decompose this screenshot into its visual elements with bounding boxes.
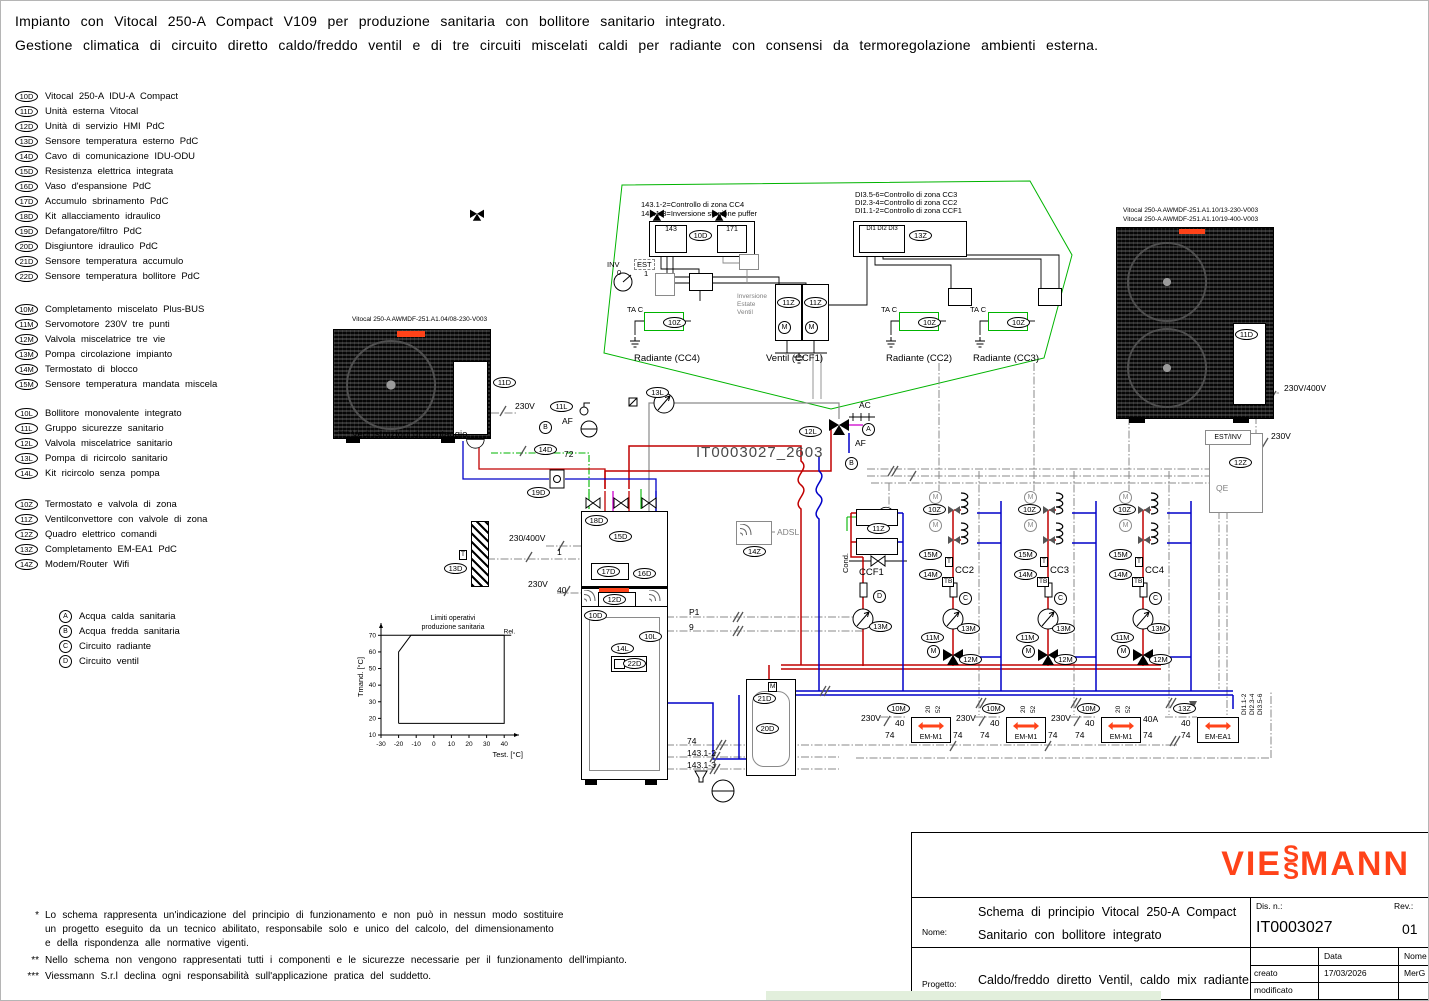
arrow-icon	[1205, 722, 1231, 730]
logo-double-s: S S	[1283, 846, 1299, 880]
legend-label: Sensore temperatura bollitore PdC	[45, 271, 200, 282]
badge-11d: 11D	[1235, 329, 1258, 340]
rev-label: Rev.:	[1394, 901, 1413, 911]
badge-12l: 12L	[799, 426, 822, 437]
badge-13z: 13Z	[1173, 703, 1196, 714]
legend-item: 12LValvola miscelatrice sanitario	[15, 436, 182, 451]
sensor-t-box: T	[459, 550, 467, 560]
electric-panel-qe	[1209, 433, 1263, 513]
legend-item: BAcqua fredda sanitaria	[59, 624, 180, 639]
right-odu-caption1: Vitocal 250-A AWMDF-251.A1.10/13-230-V00…	[1123, 207, 1258, 214]
legend-label: Acqua fredda sanitaria	[79, 626, 180, 637]
legend-letter-badge: C	[59, 640, 72, 653]
legend-badge: 10D	[15, 91, 38, 102]
badge-14l: 14L	[611, 643, 634, 654]
label-9: 9	[689, 622, 694, 632]
label-230v: 230V	[515, 401, 535, 411]
label-40a: 40A	[1143, 714, 1158, 724]
legend-badge: 14L	[15, 468, 38, 479]
svg-text:30: 30	[483, 741, 491, 748]
note-3: *** Viessmann S.r.l declina ogni respons…	[17, 970, 627, 984]
badge-12d: 12D	[603, 594, 626, 605]
badge-15m: 15M	[1109, 549, 1132, 560]
legend-badge: 18D	[15, 211, 38, 222]
badge-10l: 10L	[639, 631, 662, 642]
legend-group-l: 10LBollitore monovalente integrato 11LGr…	[15, 406, 182, 481]
brand-accent-bar	[397, 331, 425, 337]
label-74: 74	[1075, 730, 1084, 740]
svg-text:20: 20	[465, 741, 473, 748]
creato-label: creato	[1254, 968, 1278, 978]
legend-label: Accumulo sbrinamento PdC	[45, 196, 168, 207]
legend-label: Termostato e valvola di zona	[45, 499, 177, 510]
page-title-line1: Impianto con Vitocal 250-A Compact V109 …	[15, 13, 726, 29]
viessmann-logo: VIE S S MANN	[1221, 847, 1410, 881]
note-1-line2: un progetto eseguito da un tecnico abili…	[45, 923, 563, 937]
terminal-52: 52	[935, 706, 942, 713]
badge-17d: 17D	[597, 566, 620, 577]
legend-item: 10DVitocal 250-A IDU-A Compact	[15, 89, 200, 104]
legend-label: Defangatore/filtro PdC	[45, 226, 142, 237]
svg-text:-20: -20	[394, 741, 404, 748]
em-m1-module: EM-M1	[911, 717, 951, 743]
legend-badge: 13Z	[15, 544, 38, 555]
legend-item: 13DSensore temperatura esterno PdC	[15, 134, 200, 149]
legend-item: 16DVaso d'espansione PdC	[15, 179, 200, 194]
note-star: ***	[17, 970, 39, 984]
label-ta-c: TA C	[627, 305, 643, 314]
label-40: 40	[990, 718, 999, 728]
note-star: **	[17, 954, 39, 968]
legend-group-z: 10ZTermostato e valvola di zona 11ZVenti…	[15, 497, 207, 572]
badge-12m: 12M	[1054, 654, 1077, 665]
svg-text:40: 40	[369, 682, 377, 689]
badge-14z: 14Z	[743, 546, 766, 557]
logo-s2: S	[1283, 863, 1299, 880]
legend-label: Sensore temperatura mandata miscela	[45, 379, 217, 390]
legend-badge: 10Z	[15, 499, 38, 510]
wifi-icon	[740, 524, 758, 542]
note-1-line1: Lo schema rappresenta un'indicazione del…	[45, 909, 563, 923]
legend-label: Resistenza elettrica integrata	[45, 166, 173, 177]
zone-relay	[689, 273, 713, 291]
terminal-52: 52	[1125, 706, 1132, 713]
zone-label-cc4: Radiante (CC4)	[634, 353, 700, 364]
chart-title-line2: produzione sanitaria	[421, 624, 484, 631]
letter-c: C	[959, 592, 972, 605]
badge-11m: 11M	[921, 632, 944, 643]
brand-accent-bar	[1179, 229, 1205, 234]
motor-icon: M	[927, 645, 940, 658]
zone-actuator-icon: M	[929, 519, 942, 532]
em-m1-label: EM-M1	[912, 734, 950, 741]
legend-label: Vaso d'espansione PdC	[45, 181, 151, 192]
mounting-note: *** Vedi istruzioni di montaggio	[338, 429, 467, 440]
note-2: ** Nello schema non vengono rappresentat…	[17, 954, 627, 968]
sensor-tb-box: TB	[942, 577, 954, 587]
label-ventil: Ventil	[737, 309, 753, 316]
arrow-icon	[918, 722, 944, 730]
legend-badge: 10M	[15, 304, 38, 315]
badge-11m: 11M	[1111, 632, 1134, 643]
nome-label: Nome:	[922, 927, 947, 937]
legend-item: 10ZTermostato e valvola di zona	[15, 497, 207, 512]
legend-label: Sensore temperatura esterno PdC	[45, 136, 198, 147]
legend-label: Completamento EM-EA1 PdC	[45, 544, 177, 555]
brand-accent-bar	[599, 588, 629, 592]
right-odu-caption2: Vitocal 250-A AWMDF-251.A1.10/19-400-V00…	[1123, 216, 1258, 223]
label-af: AF	[562, 416, 573, 426]
legend-item: 17DAccumulo sbrinamento PdC	[15, 194, 200, 209]
unit-foot	[1129, 417, 1145, 423]
label-p1: P1	[689, 607, 699, 617]
legend-badge: 12Z	[15, 529, 38, 540]
legend-label: Valvola miscelatrice sanitario	[45, 438, 173, 449]
badge-13z: 13Z	[909, 230, 932, 241]
badge-15d: 15D	[609, 531, 632, 542]
legend-label: Acqua calda sanitaria	[79, 611, 176, 622]
svg-text:60: 60	[369, 649, 377, 656]
label-ta-c: TA C	[970, 305, 986, 314]
legend-item: 15MSensore temperatura mandata miscela	[15, 377, 217, 392]
legend-badge: 16D	[15, 181, 38, 192]
chart-title-line1: Limiti operativi	[431, 615, 476, 622]
schematic-page: Impianto con Vitocal 250-A Compact V109 …	[0, 0, 1429, 1001]
label-adsl: ADSL	[777, 527, 799, 537]
legend-label: Cavo di comunicazione IDU-ODU	[45, 151, 195, 162]
legend-label: Kit allacciamento idraulico	[45, 211, 161, 222]
unit-foot	[1233, 417, 1249, 423]
em-m1-module: EM-M1	[1006, 717, 1046, 743]
label-74: 74	[980, 730, 989, 740]
letter-b: B	[539, 421, 552, 434]
legend-item: 10MCompletamento miscelato Plus-BUS	[15, 302, 217, 317]
legend-badge: 10L	[15, 408, 38, 419]
svg-text:30: 30	[369, 699, 377, 706]
legend-group-d: 10DVitocal 250-A IDU-A Compact 11DUnità …	[15, 89, 200, 284]
terminal-171-box: 171	[717, 225, 747, 253]
badge-10m: 10M	[1077, 703, 1100, 714]
motor-icon: M	[778, 321, 791, 334]
legend-item: AAcqua calda sanitaria	[59, 609, 180, 624]
idu-port-stubs	[605, 491, 656, 511]
legend-badge: 12L	[15, 438, 38, 449]
badge-10z: 10Z	[1018, 504, 1041, 515]
badge-11z: 11Z	[777, 297, 800, 308]
badge-11m: 11M	[1016, 632, 1039, 643]
zone-actuator-icon: M	[1024, 491, 1037, 504]
legend-badge: 15D	[15, 166, 38, 177]
di3-terminal-label: DI3.5-6	[1257, 694, 1264, 715]
label-230v: 230V	[1271, 431, 1291, 441]
badge-13m: 13M	[957, 623, 980, 634]
badge-10m: 10M	[887, 703, 910, 714]
svg-text:10: 10	[448, 741, 456, 748]
badge-10z: 10Z	[663, 317, 686, 328]
label-inversione: Inversione	[737, 293, 767, 300]
label-74: 74	[687, 736, 696, 746]
legend-badge: 21D	[15, 256, 38, 267]
terminal-143-box: 143	[655, 225, 687, 253]
badge-15m: 15M	[1014, 549, 1037, 560]
letter-a: A	[862, 423, 875, 436]
arrow-icon	[1013, 722, 1039, 730]
legend-item: DCircuito ventil	[59, 654, 180, 669]
zone-actuator-icon: M	[1119, 519, 1132, 532]
fancoil-unit	[856, 538, 898, 555]
sensor-t-box: T	[1135, 557, 1143, 567]
legend-item: 12DUnità di servizio HMI PdC	[15, 119, 200, 134]
sensor-m-box: M	[768, 682, 777, 692]
modificato-label: modificato	[1254, 985, 1293, 995]
legend-item: 19DDefangatore/filtro PdC	[15, 224, 200, 239]
label-estate: Estate	[737, 301, 755, 308]
label-qe: QE	[1216, 483, 1228, 493]
svg-text:-30: -30	[376, 741, 386, 748]
em-m1-label: EM-M1	[1007, 734, 1045, 741]
legend-item: 14ZModem/Router Wifi	[15, 557, 207, 572]
legend-group-letters: AAcqua calda sanitaria BAcqua fredda san…	[59, 609, 180, 669]
svg-text:10: 10	[369, 732, 377, 739]
legend-label: Servomotore 230V tre punti	[45, 319, 170, 330]
legend-item: 11MServomotore 230V tre punti	[15, 317, 217, 332]
badge-20d: 20D	[756, 723, 779, 734]
sensor-tb-box: TB	[1037, 577, 1049, 587]
badge-21d: 21D	[753, 693, 776, 704]
label-zero: 0	[617, 268, 621, 277]
sensor-t-box: T	[1040, 557, 1048, 567]
label-143-1-2: 143.1-2	[687, 748, 716, 758]
legend-item: 13MPompa circolazione impianto	[15, 347, 217, 362]
wifi-icon	[584, 590, 600, 606]
legend-item: 18DKit allacciamento idraulico	[15, 209, 200, 224]
em-m1-module: EM-M1	[1101, 717, 1141, 743]
legend-item: 10LBollitore monovalente integrato	[15, 406, 182, 421]
badge-11z: 11Z	[804, 297, 827, 308]
left-odu-panel	[453, 361, 488, 435]
badge-13m: 13M	[869, 621, 892, 632]
badge-13m: 13M	[1052, 623, 1075, 634]
legend-badge: 22D	[15, 271, 38, 282]
motor-icon: M	[1022, 645, 1035, 658]
unit-foot	[645, 780, 657, 785]
svg-text:0: 0	[432, 741, 436, 748]
note-star: *	[17, 909, 39, 951]
label-40: 40	[1085, 718, 1094, 728]
note-3-text: Viessmann S.r.l declina ogni responsabil…	[45, 970, 431, 984]
left-odu-caption: Vitocal 250-A AWMDF-251.A1.04/08-230-V00…	[352, 316, 487, 323]
label-72: 72	[564, 449, 573, 459]
svg-text:50: 50	[369, 666, 377, 673]
em-m1-label: EM-M1	[1102, 734, 1140, 741]
label-74: 74	[1181, 730, 1190, 740]
badge-10z: 10Z	[918, 317, 941, 328]
label-cond: Cond.	[841, 553, 850, 573]
legend-label: Circuito radiante	[79, 641, 151, 652]
data-column-label: Data	[1324, 951, 1342, 961]
logo-text-a: VIE	[1221, 847, 1282, 881]
creato-date: 17/03/2026	[1324, 968, 1367, 978]
legend-label: Completamento miscelato Plus-BUS	[45, 304, 204, 315]
legend-label: Gruppo sicurezze sanitario	[45, 423, 164, 434]
legend-letter-badge: B	[59, 625, 72, 638]
legend-item: 13LPompa di ricircolo sanitario	[15, 451, 182, 466]
legend-label: Unità di servizio HMI PdC	[45, 121, 165, 132]
legend-badge: 11L	[15, 423, 38, 434]
badge-18d: 18D	[585, 515, 608, 526]
label-230v: 230V	[861, 713, 881, 723]
legend-item: 12ZQuadro elettrico comandi	[15, 527, 207, 542]
letter-c: C	[1149, 592, 1162, 605]
legend-badge: 14M	[15, 364, 38, 375]
badge-14m: 14M	[1109, 569, 1132, 580]
legend-item: CCircuito radiante	[59, 639, 180, 654]
inversion-relay-box	[739, 254, 759, 270]
svg-text:70: 70	[369, 632, 377, 639]
zone-ccf1-label: CCF1	[859, 567, 884, 578]
fan-icon	[346, 340, 436, 430]
terminal-20: 20	[925, 706, 932, 713]
zone-cc3-label: CC3	[1050, 565, 1069, 576]
svg-text:40: 40	[501, 741, 509, 748]
legend-item: 21DSensore temperatura accumulo	[15, 254, 200, 269]
legend-item: 13ZCompletamento EM-EA1 PdC	[15, 542, 207, 557]
legend-letter-badge: A	[59, 610, 72, 623]
legend-label: Sensore temperatura accumulo	[45, 256, 183, 267]
legend-label: Circuito ventil	[79, 656, 139, 667]
legend-letter-badge: D	[59, 655, 72, 668]
label-230v: 230V	[956, 713, 976, 723]
legend-badge: 13M	[15, 349, 38, 360]
dis-n-label: Dis. n.:	[1256, 901, 1282, 911]
legend-label: Kit ricircolo senza pompa	[45, 468, 160, 479]
doc-title-line2: Sanitario con bollitore integrato	[978, 928, 1162, 942]
badge-10d: 10D	[689, 230, 712, 241]
motor-icon: M	[805, 321, 818, 334]
legend-badge: 12D	[15, 121, 38, 132]
badge-12z: 12Z	[1229, 457, 1252, 468]
control-note-puffer: 143.1-3=Inversione stagione puffer	[641, 209, 757, 218]
em-ea1-label: EM-EA1	[1198, 734, 1238, 741]
legend-label: Valvola miscelatrice tre vie	[45, 334, 165, 345]
legend-badge: 11M	[15, 319, 38, 330]
legend-label: Quadro elettrico comandi	[45, 529, 157, 540]
legend-badge: 12M	[15, 334, 38, 345]
chart-xlabel: Test. [°C]	[492, 750, 523, 759]
letter-b: B	[845, 457, 858, 470]
legend-badge: 15M	[15, 379, 38, 390]
legend-group-m: 10MCompletamento miscelato Plus-BUS 11MS…	[15, 302, 217, 392]
zone-label-cc3: Radiante (CC3)	[973, 353, 1039, 364]
legend-label: Pompa circolazione impianto	[45, 349, 172, 360]
di2-terminal-label: DI2.3-4	[1249, 694, 1256, 715]
di-terminals-box: DI1 DI2 DI3	[859, 225, 905, 253]
badge-10d: 10D	[584, 610, 607, 621]
di1-terminal-label: DI1.1-2	[1241, 694, 1248, 715]
sensor-tb-box: TB	[1132, 577, 1144, 587]
control-note-cc4: 143.1-2=Controllo di zona CC4	[641, 200, 744, 209]
progetto-value: Caldo/freddo diretto Ventil, caldo mix r…	[978, 973, 1249, 987]
terminal-20: 20	[1115, 706, 1122, 713]
legend-label: Ventilconvettore con valvole di zona	[45, 514, 207, 525]
badge-13d: 13D	[444, 563, 467, 574]
badge-15m: 15M	[919, 549, 942, 560]
legend-item: 15DResistenza elettrica integrata	[15, 164, 200, 179]
wall-hatch	[471, 521, 489, 587]
legend-badge: 13D	[15, 136, 38, 147]
legend-badge: 13L	[15, 453, 38, 464]
legend-label: Pompa di ricircolo sanitario	[45, 453, 168, 464]
legend-badge: 19D	[15, 226, 38, 237]
fan-icon	[1127, 242, 1207, 322]
legend-label: Bollitore monovalente integrato	[45, 408, 182, 419]
legend-item: 22DSensore temperatura bollitore PdC	[15, 269, 200, 284]
legend-badge: 17D	[15, 196, 38, 207]
note-1: * Lo schema rappresenta un'indicazione d…	[17, 909, 627, 951]
legend-badge: 20D	[15, 241, 38, 252]
badge-10z: 10Z	[1007, 317, 1030, 328]
title-block: VIE S S MANN Nome: Schema di principio V…	[911, 832, 1429, 1000]
label-230v-400v: 230V/400V	[1284, 383, 1326, 393]
badge-13m: 13M	[1147, 623, 1170, 634]
chart-ylabel: Tmand. [°C]	[356, 657, 365, 697]
label-230v: 230V	[528, 579, 548, 589]
label-230v: 230V	[1051, 713, 1071, 723]
legend-label: Modem/Router Wifi	[45, 559, 129, 570]
badge-11z: 11Z	[867, 523, 890, 534]
label-one: 1	[644, 269, 648, 278]
label-230-400v: 230/400V	[509, 533, 545, 543]
badge-14m: 14M	[919, 569, 942, 580]
label-74: 74	[885, 730, 894, 740]
legend-item: 20DDisgiuntore idraulico PdC	[15, 239, 200, 254]
badge-10z: 10Z	[923, 504, 946, 515]
label-40: 40	[557, 585, 566, 595]
operating-limits-chart: Limiti operativi produzione sanitaria Te…	[353, 607, 531, 765]
note-2-text: Nello schema non vengono rappresentati t…	[45, 954, 627, 968]
legend-badge: 11D	[15, 106, 38, 117]
page-title-line2: Gestione climatica di circuito diretto c…	[15, 37, 1098, 53]
label-143-1-3: 143.1-3	[687, 760, 716, 770]
logo-text-b: MANN	[1300, 847, 1410, 881]
terminal-20: 20	[1020, 706, 1027, 713]
est-inv-box: EST/INV	[1205, 430, 1251, 445]
badge-11d: 11D	[493, 377, 516, 388]
note-1-line3: e della rispondenza alle normative vigen…	[45, 937, 563, 951]
doc-title-line1: Schema di principio Vitocal 250-A Compac…	[978, 905, 1236, 919]
label-40: 40	[1181, 718, 1190, 728]
relay-box	[655, 273, 675, 296]
zone-label-cc2: Radiante (CC2)	[886, 353, 952, 364]
legend-badge: 11Z	[15, 514, 38, 525]
label-74: 74	[1048, 730, 1057, 740]
terminal-52: 52	[1030, 706, 1037, 713]
legend-label: Unità esterna Vitocal	[45, 106, 138, 117]
highlight-artifact	[766, 991, 1161, 1000]
label-74: 74	[1143, 730, 1152, 740]
label-74: 74	[953, 730, 962, 740]
zone-label-ccf1: Ventil (CCF1)	[766, 353, 823, 364]
disclaimer-notes: * Lo schema rappresenta un'indicazione d…	[17, 909, 627, 984]
progetto-label: Progetto:	[922, 979, 957, 989]
badge-12m: 12M	[1149, 654, 1172, 665]
em-ea1-module: EM-EA1	[1197, 717, 1239, 743]
zone-relay	[1038, 288, 1062, 306]
legend-item: 14DCavo di comunicazione IDU-ODU	[15, 149, 200, 164]
legend-item: 12MValvola miscelatrice tre vie	[15, 332, 217, 347]
zone-actuator-icon: M	[1119, 491, 1132, 504]
label-1: 1	[557, 547, 562, 557]
